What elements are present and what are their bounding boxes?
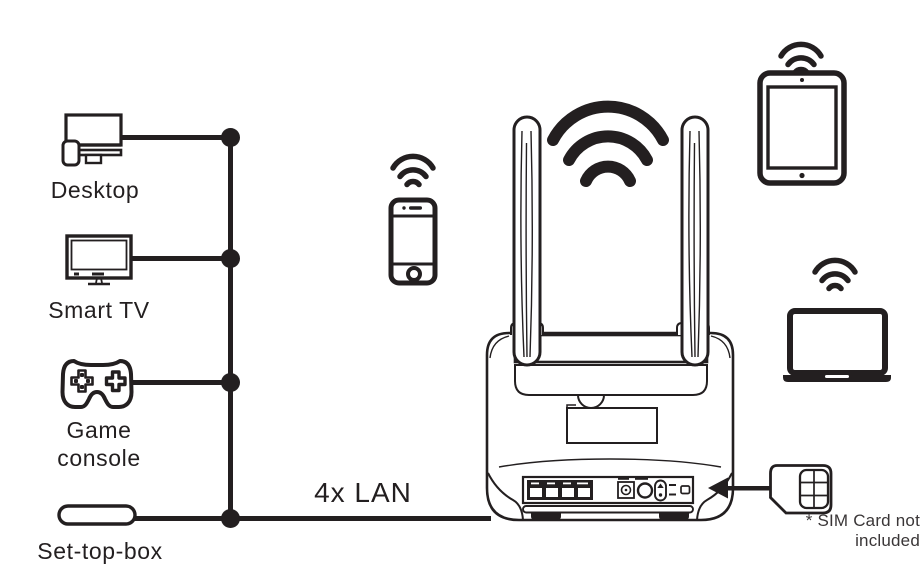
router-antenna-left	[514, 117, 540, 365]
sim-arrow	[704, 470, 770, 506]
game-console-icon	[58, 354, 136, 412]
tablet-icon	[757, 70, 847, 186]
connector-game-console	[131, 380, 232, 385]
connector-smart-tv	[126, 256, 232, 261]
desktop-label: Desktop	[40, 176, 150, 204]
junction-dot-set-top-box	[221, 509, 240, 528]
smart-tv-icon	[64, 233, 138, 287]
lan-bus-vertical-line	[228, 135, 233, 521]
junction-dot-smart-tv	[221, 249, 240, 268]
router-wifi-icon	[545, 96, 671, 188]
laptop-wifi-icon	[811, 256, 859, 292]
junction-dot-desktop	[221, 128, 240, 147]
desktop-icon	[60, 110, 126, 168]
lan-connection-label: 4x LAN	[308, 477, 418, 509]
game-console-label: Game console	[49, 416, 149, 472]
set-top-box-icon	[56, 502, 138, 528]
sim-footnote: * SIM Card not included	[744, 511, 920, 551]
set-top-box-label: Set-top-box	[20, 537, 180, 565]
smartphone-wifi-icon	[389, 152, 437, 188]
router-antenna-right	[682, 117, 708, 365]
connector-desktop	[120, 135, 232, 140]
smart-tv-label: Smart TV	[29, 296, 169, 324]
junction-dot-game-console	[221, 373, 240, 392]
laptop-icon	[781, 308, 893, 384]
smartphone-icon	[388, 197, 440, 287]
sim-card-icon	[766, 463, 836, 517]
connector-lan-to-router	[131, 516, 491, 521]
